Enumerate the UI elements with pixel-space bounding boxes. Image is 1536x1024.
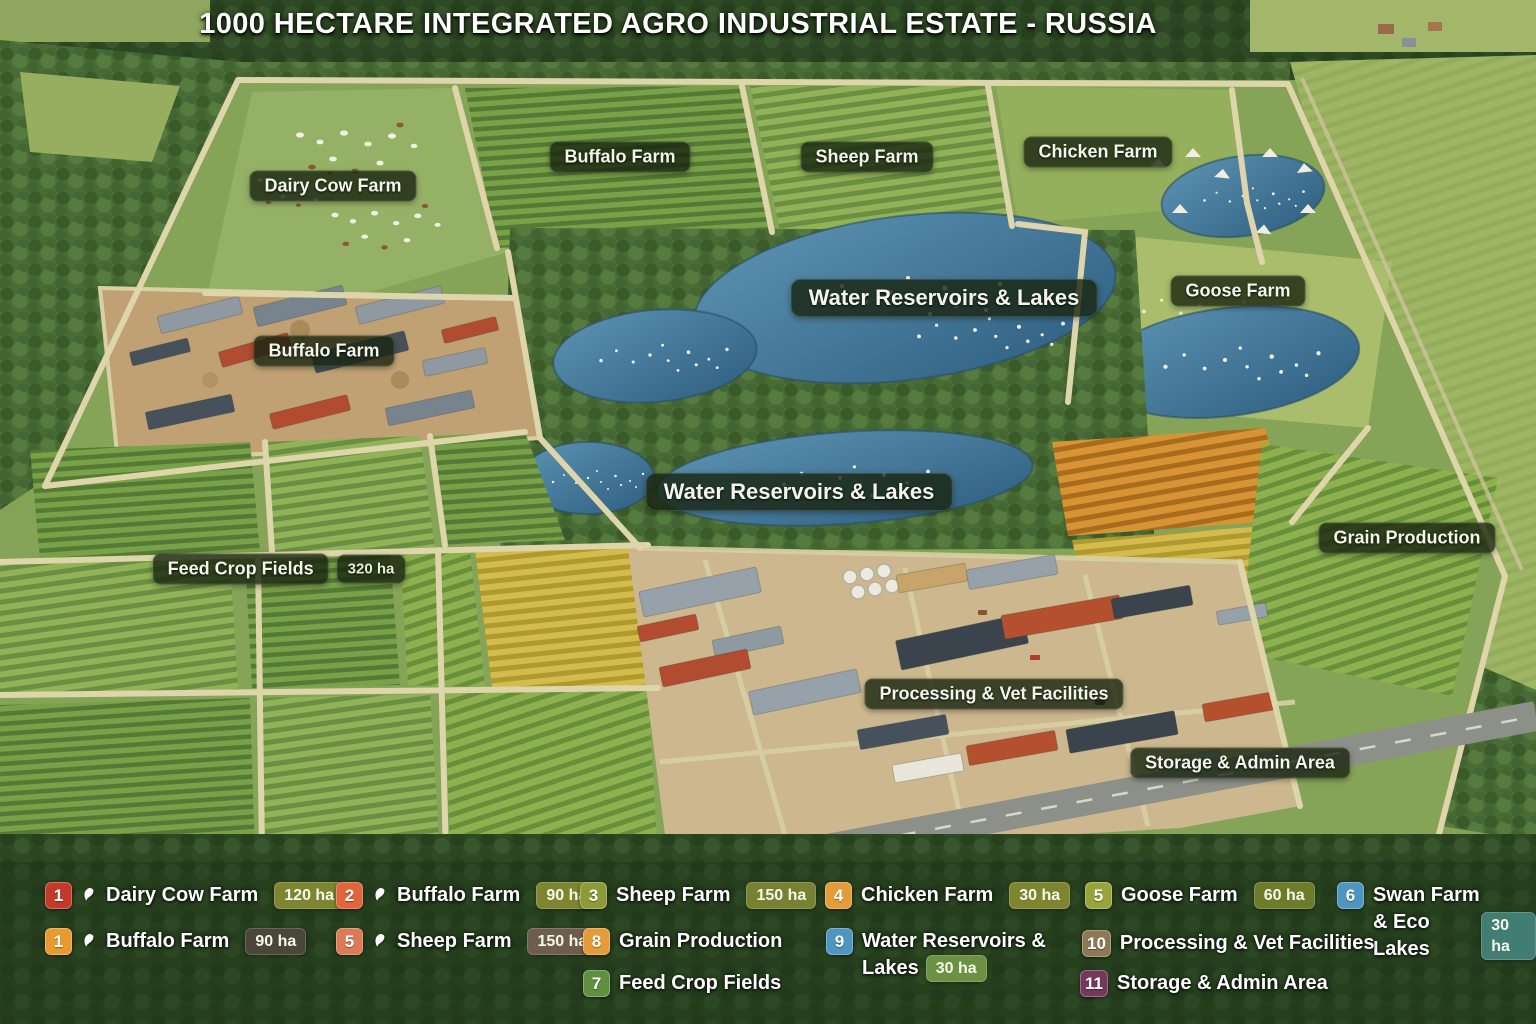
top-hedge: [230, 62, 1290, 80]
legend-number: 2: [336, 882, 363, 909]
legend-item-dairy-cow-farm: 1 Dairy Cow Farm 120 ha: [45, 882, 344, 909]
map-label-text: Buffalo Farm: [549, 142, 690, 173]
legend-area-badge: 30 ha: [1009, 882, 1070, 909]
legend-label: & Eco Lakes: [1373, 909, 1474, 963]
map-label-processing-vet: Processing & Vet Facilities: [864, 679, 1123, 710]
legend-area-badge: 30 ha: [1481, 912, 1536, 960]
map-label-text: Goose Farm: [1170, 276, 1305, 307]
legend-area-badge: 60 ha: [1254, 882, 1315, 909]
legend-number: 11: [1080, 970, 1108, 997]
map-label-grain-production: Grain Production: [1318, 523, 1495, 554]
map-label-text: Sheep Farm: [800, 142, 933, 173]
map-label-buffalo-farm-top: Buffalo Farm: [549, 142, 690, 173]
legend-label: Storage & Admin Area: [1117, 970, 1328, 997]
legend-item-sheep-farm-2: 5 Sheep Farm 150 ha: [336, 928, 597, 955]
map-label-dairy-cow-farm: Dairy Cow Farm: [249, 171, 416, 202]
map-label-sheep-farm: Sheep Farm: [800, 142, 933, 173]
legend-number: 9: [826, 928, 853, 955]
legend-number: 5: [1085, 882, 1112, 909]
legend-label: Buffalo Farm: [106, 928, 229, 955]
legend-label: Swan Farm: [1373, 882, 1536, 909]
legend-label: Goose Farm: [1121, 882, 1238, 909]
map-label-text: Water Reservoirs & Lakes: [791, 279, 1098, 317]
agro-estate-infographic: 1000 HECTARE INTEGRATED AGRO INDUSTRIAL …: [0, 0, 1536, 1024]
map-label-text: Water Reservoirs & Lakes: [646, 473, 953, 511]
sheep-icon: [372, 933, 388, 949]
legend-item-buffalo-farm-2: 1 Buffalo Farm 90 ha: [45, 928, 306, 955]
map-label-feed-crop-fields: Feed Crop Fields 320 ha: [153, 554, 406, 585]
estate-map-illustration: [0, 0, 1536, 1024]
map-label-text: Storage & Admin Area: [1130, 748, 1350, 779]
map-label-chicken-farm: Chicken Farm: [1023, 137, 1172, 168]
legend-number: 10: [1082, 930, 1111, 957]
buffalo-icon: [81, 933, 97, 949]
legend-label: Sheep Farm: [397, 928, 511, 955]
legend-number: 3: [580, 882, 607, 909]
legend-item-storage-admin: 11 Storage & Admin Area: [1080, 970, 1328, 997]
legend-item-processing-vet: 10 Processing & Vet Facilities: [1082, 930, 1374, 957]
buffalo-icon: [372, 887, 388, 903]
map-label-water-reservoirs-lower: Water Reservoirs & Lakes: [646, 473, 953, 511]
legend-label: Lakes: [862, 955, 919, 982]
legend-label: Water Reservoirs &: [862, 928, 1046, 955]
legend-label: Buffalo Farm: [397, 882, 520, 909]
legend-item-goose-farm: 5 Goose Farm 60 ha: [1085, 882, 1315, 909]
legend-label: Grain Production: [619, 928, 782, 955]
map-label-storage-admin: Storage & Admin Area: [1130, 748, 1350, 779]
legend-item-feed-crop-fields: 7 Feed Crop Fields: [583, 970, 781, 997]
legend-label: Chicken Farm: [861, 882, 993, 909]
legend-area-badge: 120 ha: [274, 882, 344, 909]
legend-area-badge: 150 ha: [746, 882, 816, 909]
map-label-text: Buffalo Farm: [253, 336, 394, 367]
legend-item-water-reservoirs: 9 Water Reservoirs & Lakes 30 ha: [826, 928, 1046, 982]
legend-number: 5: [336, 928, 363, 955]
legend-number: 7: [583, 970, 610, 997]
legend-item-grain-production: 8 Grain Production: [583, 928, 782, 955]
map-label-text: Grain Production: [1318, 523, 1495, 554]
legend-label: Dairy Cow Farm: [106, 882, 258, 909]
map-label-text: Processing & Vet Facilities: [864, 679, 1123, 710]
map-label-water-reservoirs-upper: Water Reservoirs & Lakes: [791, 279, 1098, 317]
dairy-cow-icon: [81, 887, 97, 903]
legend-label: Processing & Vet Facilities: [1120, 930, 1375, 957]
map-label-text: Dairy Cow Farm: [249, 171, 416, 202]
page-title: 1000 HECTARE INTEGRATED AGRO INDUSTRIAL …: [199, 8, 1157, 41]
map-label-text: Chicken Farm: [1023, 137, 1172, 168]
legend-label: Sheep Farm: [616, 882, 730, 909]
legend-number: 6: [1337, 882, 1364, 909]
legend-item-buffalo-farm: 2 Buffalo Farm 90 ha: [336, 882, 597, 909]
legend-number: 8: [583, 928, 610, 955]
map-label-buffalo-farm-left: Buffalo Farm: [253, 336, 394, 367]
legend-item-chicken-farm: 4 Chicken Farm 30 ha: [825, 882, 1070, 909]
legend-area-badge: 90 ha: [245, 928, 306, 955]
legend-label: Feed Crop Fields: [619, 970, 781, 997]
legend-item-sheep-farm: 3 Sheep Farm 150 ha: [580, 882, 816, 909]
area-badge: 320 ha: [337, 555, 406, 584]
map-label-goose-farm: Goose Farm: [1170, 276, 1305, 307]
legend-number: 4: [825, 882, 852, 909]
map-label-text: Feed Crop Fields: [153, 554, 329, 585]
legend-number: 1: [45, 882, 72, 909]
legend-area-badge: 30 ha: [926, 955, 987, 982]
legend-number: 1: [45, 928, 72, 955]
